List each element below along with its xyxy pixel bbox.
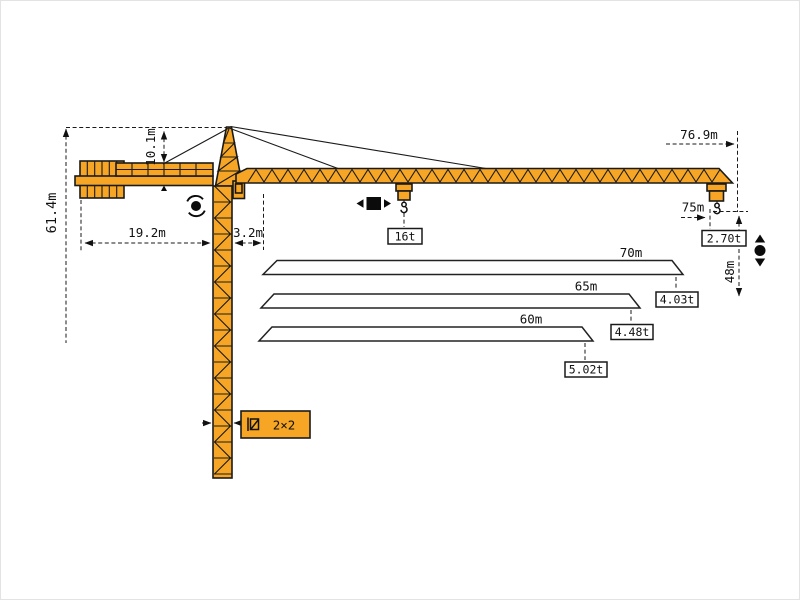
hoist-up-arrow — [755, 235, 765, 243]
max-load-callout: 16t — [388, 229, 422, 245]
total-height-label: 61.4m — [44, 193, 60, 234]
trolley-tip-hook-eye — [715, 203, 719, 207]
main-jib — [236, 169, 733, 184]
rear-offset-label: 3.2m — [233, 225, 263, 240]
trolley-travel-icon — [357, 197, 392, 210]
variant-65m-length-label: 65m — [575, 279, 598, 294]
slewing-arc-bottom — [189, 211, 205, 217]
variant-65m-load-label: 4.48t — [615, 325, 650, 339]
tower-head-height-label: 10.1m — [143, 128, 158, 166]
slewing-icon — [187, 196, 205, 216]
variant-70m-load-label: 4.03t — [660, 293, 695, 307]
trolley-mid-block — [398, 191, 410, 200]
variant-60m-length-label: 60m — [520, 312, 543, 327]
trapezoid-70m — [263, 261, 683, 275]
max-load-label: 16t — [395, 230, 416, 244]
trolley-tip-block — [710, 191, 724, 201]
trolley-left-arrow — [357, 199, 364, 207]
trolley-mid-hook — [401, 207, 407, 213]
hook-height-label: 48m — [722, 261, 737, 284]
tie-cables — [163, 127, 486, 169]
trolley-mid — [396, 184, 412, 213]
trolley-tip-hook — [714, 208, 720, 214]
counter-jib-length-label: 19.2m — [128, 225, 166, 240]
trolley-mid-frame — [396, 184, 412, 191]
trolley-mid-hook-eye — [402, 202, 406, 206]
diagram-canvas: 70m 4.03t 65m 4.48t 60m 5.02t 16t 2.70t … — [0, 0, 800, 600]
jib-variant-60m: 60m 5.02t — [259, 312, 607, 378]
max-radius-label: 75m — [682, 200, 705, 215]
mast-section-label: 2×2 — [273, 418, 296, 433]
tower-head-lower-arrow — [161, 186, 167, 192]
trolley-right-arrow — [384, 199, 391, 207]
variant-60m-load-label: 5.02t — [569, 363, 604, 377]
front-tie-cable-2 — [231, 127, 487, 169]
slewing-arc-top — [187, 196, 203, 201]
counter-jib-beam — [75, 176, 213, 186]
hoist-dot — [755, 245, 766, 256]
tip-load-label: 2.70t — [707, 232, 742, 246]
tower-mast — [213, 186, 232, 478]
rear-tie-cable — [163, 128, 229, 164]
hoist-icon — [755, 235, 766, 267]
crane-spec-diagram: 70m 4.03t 65m 4.48t 60m 5.02t 16t 2.70t … — [0, 0, 800, 600]
variant-70m-length-label: 70m — [620, 245, 643, 260]
tip-load-callout: 2.70t — [702, 231, 746, 247]
jib-overall-length-label: 76.9m — [680, 127, 718, 142]
trapezoid-60m — [259, 327, 593, 341]
trolley-square — [367, 197, 382, 210]
front-tie-cable-1 — [229, 128, 338, 169]
trolley-tip-frame — [707, 184, 726, 191]
trapezoid-65m — [261, 294, 640, 308]
hoist-down-arrow — [755, 259, 765, 267]
slewing-dot — [191, 201, 201, 211]
